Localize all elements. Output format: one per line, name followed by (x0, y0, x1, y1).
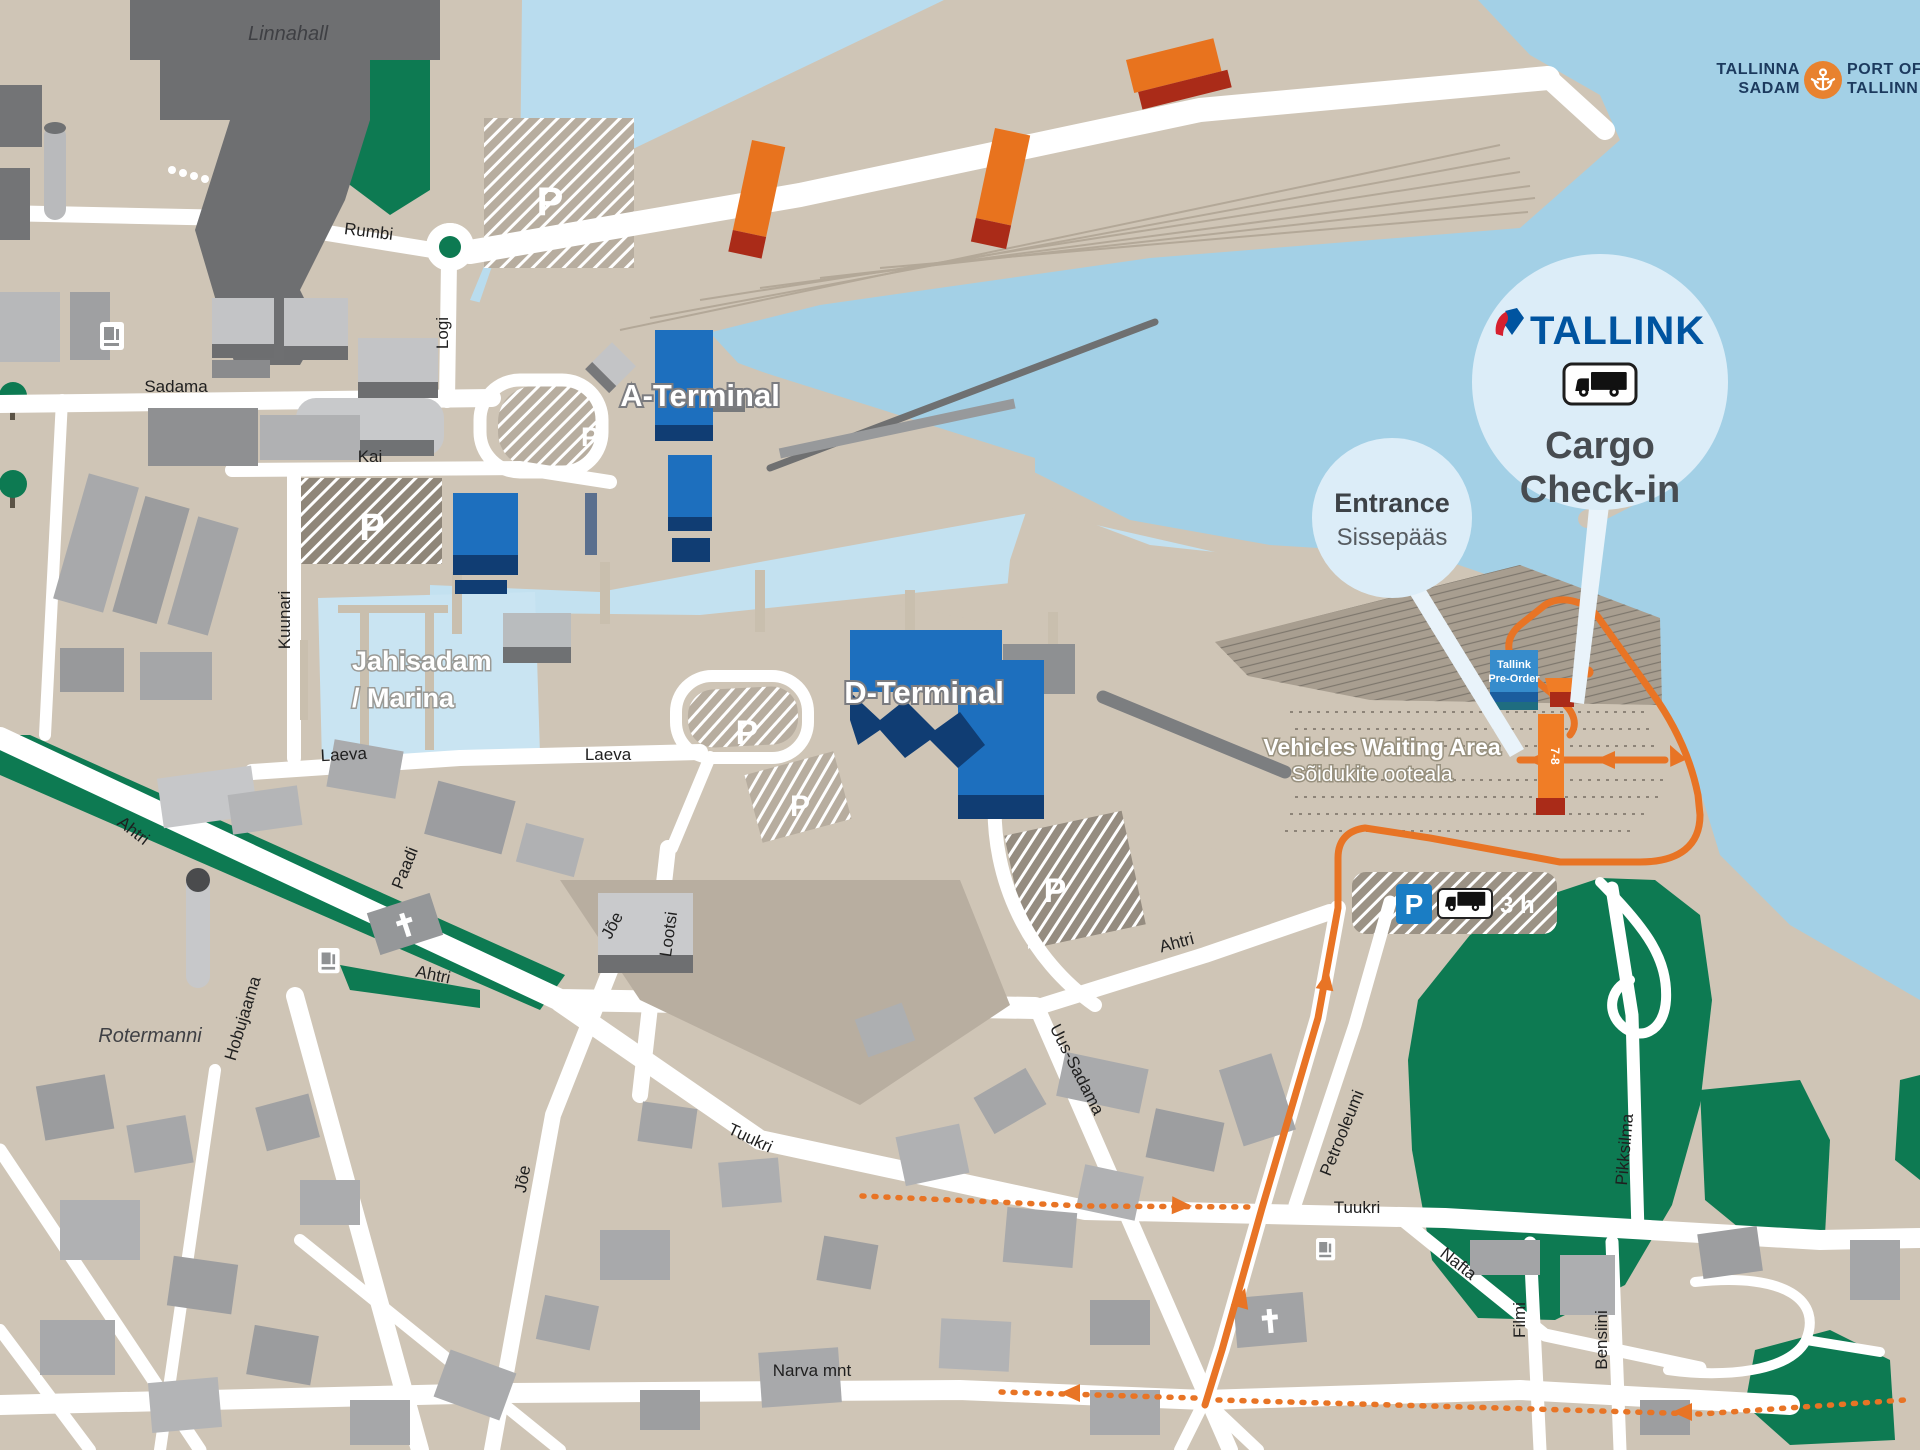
tallink-wordmark: TALLINK (1530, 309, 1705, 353)
area-label-rotermanni: Rotermanni (98, 1025, 202, 1047)
street-label-logi: Logi (433, 317, 452, 349)
street-label-tuukri: Tuukri (1334, 1198, 1381, 1217)
smokestack-icon (44, 122, 66, 220)
entrance-title: Entrance (1334, 488, 1450, 518)
port-logo-line4: TALLINN (1847, 80, 1918, 97)
port-logo-line2: SADAM (1738, 80, 1800, 97)
street-label-filmi: Filmi (1510, 1302, 1529, 1338)
port-of-tallinn-logo: TALLINNA SADAM PORT OF TALLINN (1716, 61, 1920, 99)
street-label-kai: Kai (358, 447, 383, 466)
area-label-linnahall: Linnahall (248, 23, 329, 45)
parking-duration: 3 h (1500, 892, 1535, 919)
waiting-area-label-1: Vehicles Waiting Area (1263, 734, 1501, 760)
lane-numbers: 7-8 (1548, 747, 1562, 765)
marina-label-1: Jahisadam (352, 646, 492, 676)
street-label-bensiini: Bensiini (1592, 1310, 1611, 1370)
entrance-callout: Entrance Sissepääs (1312, 438, 1472, 598)
parking-icon: P (359, 507, 384, 549)
parking-icon: P (736, 714, 759, 752)
parking-icon: P (790, 790, 810, 823)
truck-sign-icon (1564, 364, 1636, 404)
parking-icon: P (1044, 872, 1067, 910)
port-logo-line1: TALLINNA (1716, 61, 1800, 78)
entrance-subtitle: Sissepääs (1337, 524, 1448, 551)
cargo-label-1: Cargo (1545, 425, 1655, 467)
preorder-label-2: Pre-Order (1488, 673, 1540, 685)
parking-icon: P (581, 422, 599, 452)
street-label-laeva: Laeva (585, 745, 632, 764)
smokestack-icon (186, 868, 210, 988)
a-terminal-label: A-Terminal (620, 378, 780, 413)
street-label-laeva: Laeva (320, 744, 368, 765)
port-logo-line3: PORT OF (1847, 61, 1920, 78)
parking-p-sign: P (1405, 889, 1424, 920)
street-label-sadama: Sadama (144, 377, 208, 396)
waiting-area-label-2: Sõidukite ooteala (1291, 763, 1452, 786)
port-of-tallinn-map: Tallink Pre-Order 7-8 P P P P P P P 3 h … (0, 0, 1920, 1450)
street-label-narva-mnt: Narva mnt (773, 1361, 852, 1380)
street-label-kuunari: Kuunari (275, 591, 294, 650)
marina-label-2: / Marina (352, 683, 455, 713)
preorder-label-1: Tallink (1497, 659, 1532, 671)
d-terminal-label: D-Terminal (844, 675, 1004, 710)
cargo-callout: TALLINK Cargo Check-in (1472, 254, 1728, 511)
map-canvas: Tallink Pre-Order 7-8 P P P P P P P 3 h … (0, 0, 1920, 1450)
cargo-label-2: Check-in (1520, 469, 1680, 511)
tallink-preorder-box: Tallink Pre-Order (1488, 650, 1540, 710)
parking-icon: P (537, 180, 564, 224)
